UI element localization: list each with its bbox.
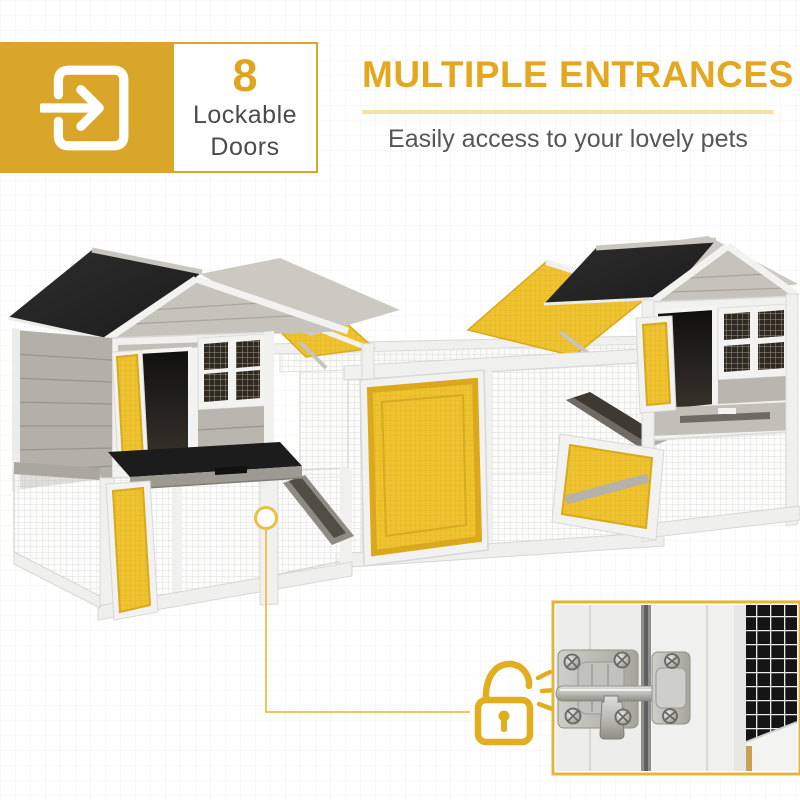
section-title: MULTIPLE ENTRANCES bbox=[362, 56, 774, 93]
feature-badge: 8 Lockable Doors bbox=[0, 42, 318, 173]
doors-label-line2: Doors bbox=[210, 131, 279, 163]
door-left-upper-open bbox=[112, 350, 148, 466]
doors-label-line1: Lockable bbox=[193, 99, 297, 131]
lockable-doors-badge: 8 Lockable Doors bbox=[172, 42, 318, 173]
door-enter-icon bbox=[40, 62, 132, 154]
left-house-window bbox=[198, 334, 266, 410]
door-center-open bbox=[360, 370, 488, 566]
right-house-window bbox=[718, 304, 790, 380]
headline-block: MULTIPLE ENTRANCES Easily access to your… bbox=[362, 56, 774, 152]
tray-support-post bbox=[260, 479, 278, 605]
section-subtitle: Easily access to your lovely pets bbox=[362, 127, 774, 152]
doors-count: 8 bbox=[232, 52, 257, 99]
title-underline bbox=[362, 110, 774, 114]
door-enter-icon-box bbox=[0, 42, 172, 173]
wire-mesh-closeup bbox=[746, 605, 797, 742]
door-right-center-open bbox=[636, 316, 676, 413]
door-latch-closeup-photo bbox=[553, 602, 800, 774]
door-right-lower-open bbox=[552, 434, 664, 540]
door-left-lower-open bbox=[106, 481, 158, 620]
circle-marker bbox=[256, 508, 277, 529]
